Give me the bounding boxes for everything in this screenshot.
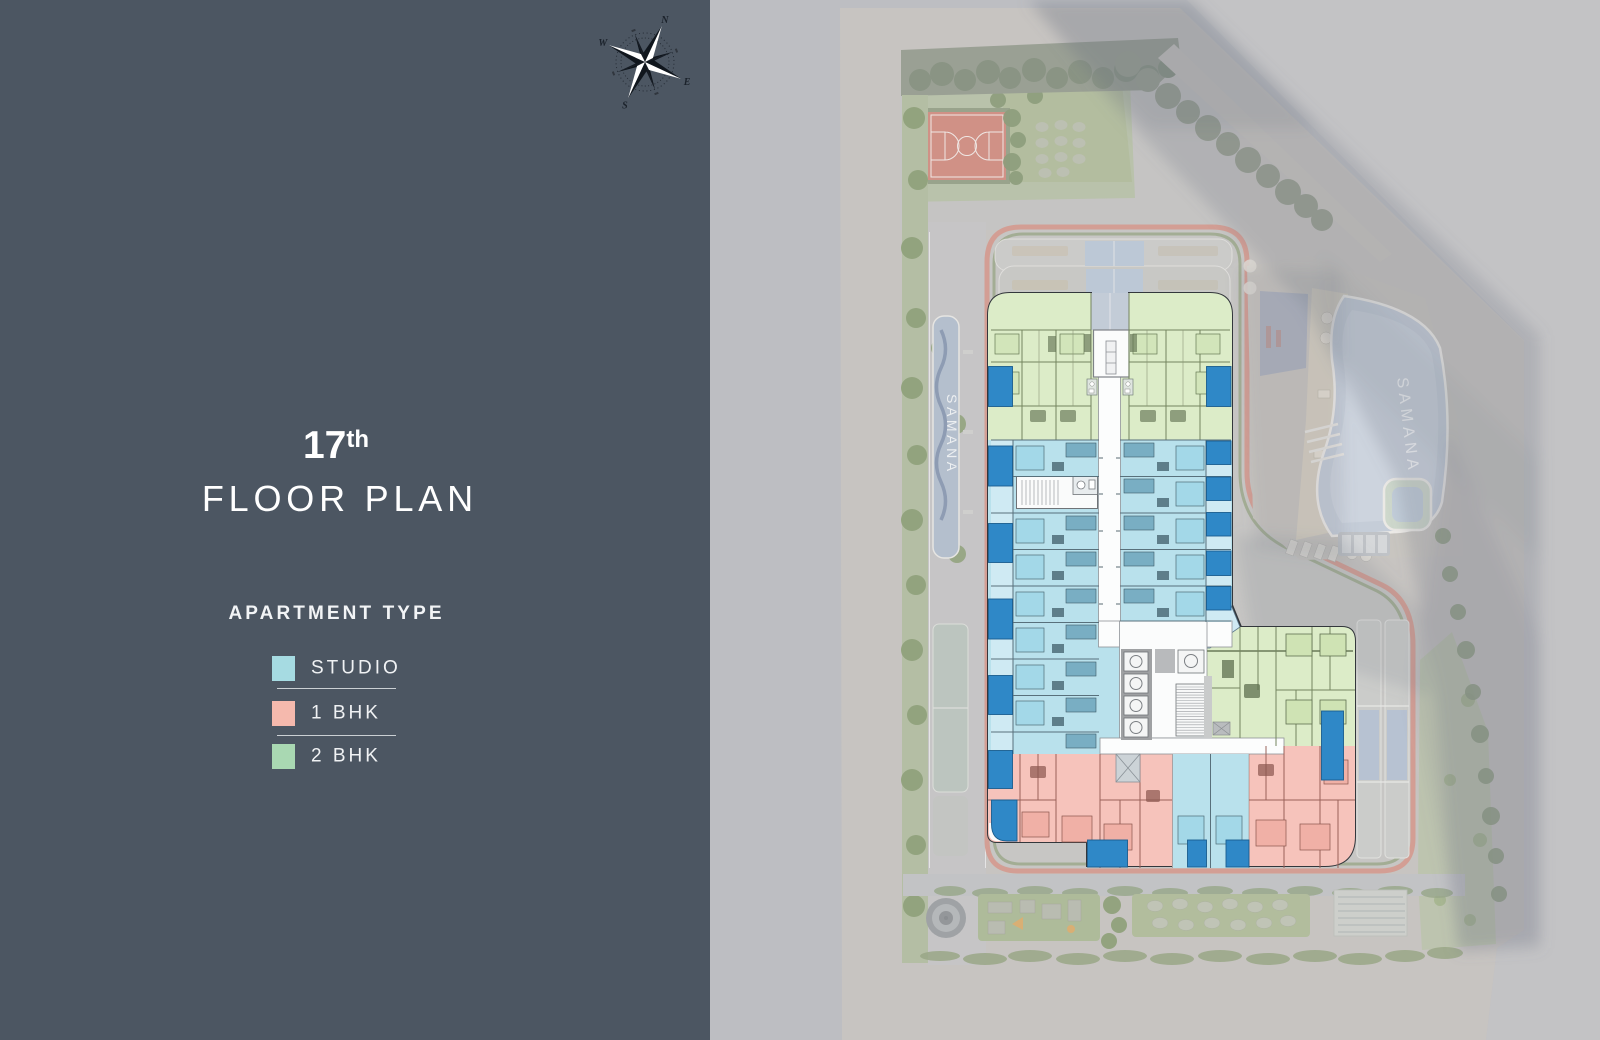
svg-text:W: W bbox=[598, 38, 608, 49]
svg-text:SAMANA: SAMANA bbox=[944, 394, 960, 475]
svg-text:N: N bbox=[660, 15, 669, 26]
svg-text:E: E bbox=[683, 77, 691, 88]
svg-text:S: S bbox=[622, 101, 628, 112]
